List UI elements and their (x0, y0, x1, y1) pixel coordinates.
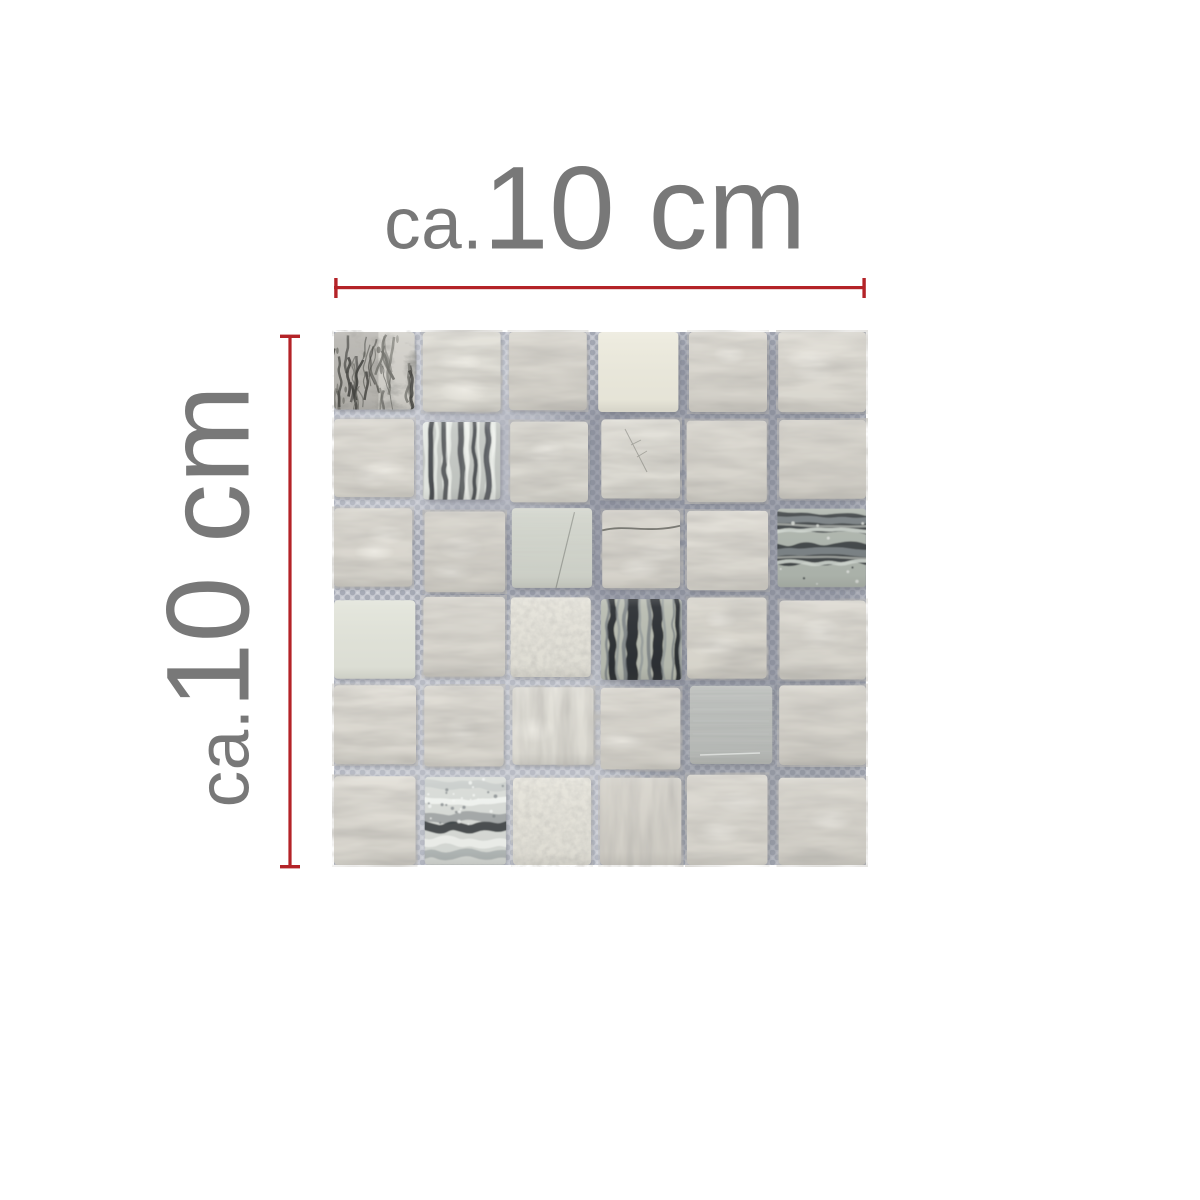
svg-text:ca.10 cm: ca.10 cm (384, 143, 807, 275)
svg-text:ca.10 cm: ca.10 cm (143, 385, 275, 808)
